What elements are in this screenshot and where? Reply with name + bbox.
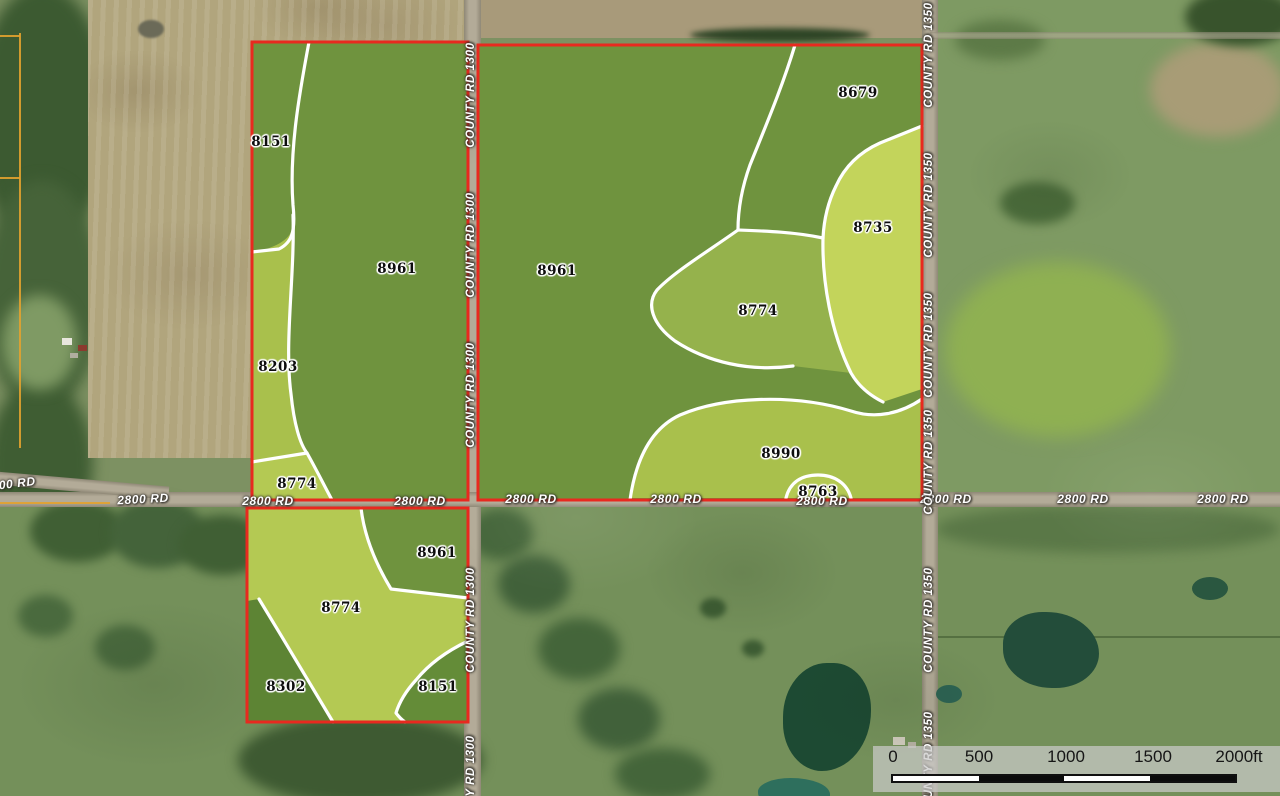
scale-tick: 1000 — [1047, 747, 1085, 767]
scale-segment — [979, 776, 1065, 781]
soil-code-label: 8763 — [798, 484, 838, 500]
soil-code-label: 8679 — [838, 85, 878, 101]
soil-code-label: 8961 — [417, 545, 457, 561]
road-label-2800: 2800 RD — [1057, 492, 1109, 506]
road-label-county-1350: COUNTY RD 1350 — [923, 152, 935, 257]
scale-tick: 2000ft — [1215, 747, 1262, 767]
soil-code-label: 8774 — [321, 600, 361, 616]
parcel-overlay — [0, 0, 1280, 796]
parcel-left-top[interactable] — [252, 42, 468, 500]
road-label-2800: 2800 RD — [505, 492, 557, 506]
scale-segment — [893, 776, 979, 781]
soil-code-label: 8774 — [277, 476, 317, 492]
road-label-county-1350: COUNTY RD 1350 — [923, 292, 935, 397]
road-label-2800: 2800 RD — [1197, 492, 1249, 506]
road-label-2800: 2800 RD — [242, 494, 294, 508]
soil-code-label: 8203 — [258, 359, 298, 375]
soil-code-label: 8774 — [738, 303, 778, 319]
road-label-county-1300: COUNTY RD 1300 — [465, 567, 477, 672]
scale-bar-segments — [891, 774, 1237, 783]
road-label-county-1350: COUNTY RD 1350 — [923, 409, 935, 514]
scale-tick: 500 — [965, 747, 993, 767]
soil-code-label: 8961 — [537, 263, 577, 279]
map-canvas[interactable]: 2800 RD 2800 RD 2800 RD 2800 RD 2800 RD … — [0, 0, 1280, 796]
road-label-county-1300: COUNTY RD 1300 — [465, 42, 477, 147]
soil-code-label: 8990 — [761, 446, 801, 462]
soil-code-label: 8151 — [418, 679, 458, 695]
soil-code-label: 8151 — [251, 134, 291, 150]
road-label-county-1350: COUNTY RD 1350 — [923, 567, 935, 672]
scale-tick: 1500 — [1134, 747, 1172, 767]
soil-code-label: 8735 — [853, 220, 893, 236]
road-label-2800: 2800 RD — [117, 491, 169, 508]
road-label-county-1350: COUNTY RD 1350 — [923, 2, 935, 107]
road-label-county-1300: COUNTY RD 1300 — [465, 735, 477, 796]
road-label-county-1300: COUNTY RD 1300 — [465, 192, 477, 297]
scale-segment — [1150, 776, 1236, 781]
road-label-county-1300: COUNTY RD 1300 — [465, 342, 477, 447]
soil-code-label: 8961 — [377, 261, 417, 277]
road-label-2800: 2800 RD — [650, 492, 702, 506]
soil-code-label: 8302 — [266, 679, 306, 695]
scale-bar: 0 500 1000 1500 2000ft — [873, 746, 1280, 792]
scale-tick: 0 — [888, 747, 897, 767]
road-label-2800: 2800 RD — [394, 494, 446, 508]
scale-segment — [1064, 776, 1150, 781]
